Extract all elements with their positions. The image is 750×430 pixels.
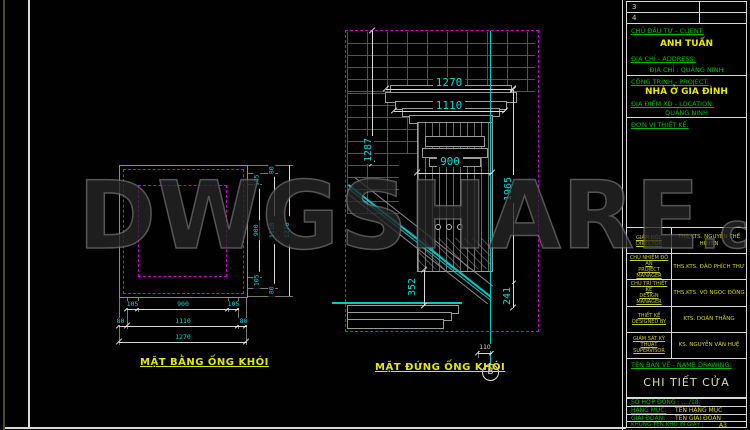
personnel-name: THS.KTS. VÕ NGỌC ĐÔNG xyxy=(672,280,746,305)
elev-dim-1287: 1287 xyxy=(364,136,374,164)
elev-dim-line-1270 xyxy=(386,89,513,90)
plan-dim-105-left: 105 xyxy=(124,301,141,308)
contract-rows: SỐ HỢP ĐỒNG : ..../18. HẠNG MỤC: TÊN HẠN… xyxy=(627,398,746,429)
personnel-row: THIẾT KẾDESIGNED BY KTS. DOÃN THẮNG xyxy=(627,307,746,333)
personnel-role-en: DIRECTOR xyxy=(636,241,662,247)
client-label: CHỦ ĐẦU TƯ - CLIENT: xyxy=(631,27,704,35)
plan-rdim-1270: 1270 xyxy=(284,216,291,244)
elev-dim-1270: 1270 xyxy=(433,77,465,88)
plan-dim-105-right: 105 xyxy=(225,301,242,308)
eave-band-3 xyxy=(347,319,444,329)
chimney-body-band-1 xyxy=(425,136,485,147)
elev-dim-900: 900 xyxy=(437,156,463,167)
category-row: HẠNG MỤC: TÊN HẠNG MỤC xyxy=(627,406,746,414)
plan-rdim-1110: 1110 xyxy=(269,216,276,244)
personnel-name: KTS. DOÃN THẮNG xyxy=(672,307,746,332)
plan-rdim-900: 900 xyxy=(253,220,260,240)
frame-left-line xyxy=(28,0,30,428)
plan-rdim-105-bot: 105 xyxy=(253,272,260,289)
chimney-vent-hole xyxy=(446,224,452,230)
stage-row: GIAI ĐOẠN: TÊN GIAI ĐOẠN xyxy=(627,414,746,422)
elev-dim-241: 241 xyxy=(503,284,513,308)
category-value: TÊN HẠNG MỤC xyxy=(675,407,722,414)
chimney-vent-hole xyxy=(435,224,441,230)
drawing-name: CHI TIẾT CỬA xyxy=(627,376,746,389)
revision-no: 4 xyxy=(632,14,636,23)
chimney-base-hatch xyxy=(418,238,490,269)
paper-label: KHUNG TÊN KHỔ IN GIẤY : xyxy=(631,422,704,429)
client-section: CHỦ ĐẦU TƯ - CLIENT: ANH TUẤN ĐỊA CHỈ - … xyxy=(627,24,746,76)
drawing-name-section: TÊN BẢN VẼ - NAME DRAWING: CHI TIẾT CỬA xyxy=(627,359,746,398)
elev-dim-line-352 xyxy=(424,270,425,306)
personnel-role-en: DESIGN MANAGER xyxy=(628,293,670,305)
site-value: QUẢNG NINH xyxy=(627,109,746,117)
elevation-view-label: MẶT ĐỨNG ỐNG KHÓI xyxy=(375,362,505,373)
plan-dashed-inner xyxy=(138,185,227,277)
address-value: ĐỊA CHỈ : QUẢNG NINH xyxy=(627,66,746,74)
plan-dim-80-left: 80 xyxy=(114,318,127,325)
revision-row: 3 xyxy=(627,2,746,13)
personnel-name: THS.KTS. ĐÀO PHÍCH THƯ xyxy=(672,254,746,279)
revision-row: 4 xyxy=(627,13,746,24)
plan-view-label: MẶT BẰNG ỐNG KHÓI xyxy=(140,357,269,368)
plan-rdim-80-top: 80 xyxy=(268,164,275,177)
plan-dim-line-2 xyxy=(119,326,247,327)
paper-row: KHUNG TÊN KHỔ IN GIẤY : A3 xyxy=(627,421,746,429)
frame-outer-left-line xyxy=(3,0,5,430)
contract-row: SỐ HỢP ĐỒNG : ..../18. xyxy=(627,398,746,406)
stage-label: GIAI ĐOẠN: xyxy=(631,415,665,422)
elev-dim-352: 352 xyxy=(408,275,418,299)
design-unit-section: ĐƠN VỊ THIẾT KẾ: xyxy=(627,118,746,228)
plan-dim-1110: 1110 xyxy=(169,318,197,325)
frame-divider-line xyxy=(622,0,623,430)
site-label: ĐỊA ĐIỂM XD - LOCATION: xyxy=(631,100,714,108)
grid-line-b xyxy=(490,31,491,364)
frame-bottom-line xyxy=(5,427,626,429)
chimney-vent-hole xyxy=(457,224,463,230)
project-label: CÔNG TRÌNH - PROJECT: xyxy=(631,78,709,86)
elev-dim-1110: 1110 xyxy=(433,100,465,111)
plan-dim-1270: 1270 xyxy=(169,334,197,341)
plan-dim-80-right: 80 xyxy=(237,318,250,325)
category-label: HẠNG MỤC: xyxy=(631,407,666,414)
personnel-role: CHỦ TRÌ THIẾT KẾ xyxy=(628,281,670,293)
personnel-role-en: SUPERVISOR xyxy=(633,348,665,354)
revision-no: 3 xyxy=(632,3,636,12)
plan-dim-line-3 xyxy=(119,342,247,343)
elev-dim-line-900 xyxy=(417,173,492,174)
design-unit-label: ĐƠN VỊ THIẾT KẾ: xyxy=(631,121,689,129)
personnel-row: GIÁM ĐỐCDIRECTOR THS.KTS. NGUYỄN THẾ HUY… xyxy=(627,228,746,254)
plan-rdim-80-bot: 80 xyxy=(268,284,275,297)
personnel-name: THS.KTS. NGUYỄN THẾ HUYỀN xyxy=(672,228,746,253)
contract-label: SỐ HỢP ĐỒNG : ..../18. xyxy=(631,399,701,406)
plan-dim-line-1 xyxy=(127,309,239,310)
client-name: ANH TUẤN xyxy=(627,39,746,49)
plan-rdim-105-top: 105 xyxy=(253,172,260,189)
personnel-name: KS. NGUYỄN VĂN HUỆ xyxy=(672,333,746,358)
address-label: ĐỊA CHỈ - ADDRESS: xyxy=(631,55,696,63)
project-section: CÔNG TRÌNH - PROJECT: NHÀ Ở GIA ĐÌNH ĐỊA… xyxy=(627,76,746,118)
elev-dim-1965: 1965 xyxy=(504,175,514,203)
title-block: 3 4 CHỦ ĐẦU TƯ - CLIENT: ANH TUẤN ĐỊA CH… xyxy=(626,1,747,428)
eave-top-line xyxy=(332,302,462,304)
plan-dim-900: 900 xyxy=(171,301,195,308)
elev-dim-110: 110 xyxy=(475,344,495,351)
personnel-role-en: PROJECT MANAGER xyxy=(628,267,670,279)
drawing-name-label: TÊN BẢN VẼ - NAME DRAWING: xyxy=(631,361,732,369)
personnel-row: CHỦ TRÌ THIẾT KẾDESIGN MANAGER THS.KTS. … xyxy=(627,280,746,306)
stage-value: TÊN GIAI ĐOẠN xyxy=(675,415,721,422)
personnel-role: GIÁM SÁT KỸ THUẬT xyxy=(628,336,670,348)
personnel-role-en: DESIGNED BY xyxy=(632,319,666,325)
personnel-role: CHỦ NHIỆM ĐỒ ÁN xyxy=(628,255,670,267)
paper-value: A3 xyxy=(719,422,727,429)
cad-viewport: DWGSHARE.com 105 900 105 80 1110 80 1270 xyxy=(0,0,750,430)
personnel-row: GIÁM SÁT KỸ THUẬTSUPERVISOR KS. NGUYỄN V… xyxy=(627,333,746,359)
personnel-row: CHỦ NHIỆM ĐỒ ÁNPROJECT MANAGER THS.KTS. … xyxy=(627,254,746,280)
personnel-table: GIÁM ĐỐCDIRECTOR THS.KTS. NGUYỄN THẾ HUY… xyxy=(627,228,746,359)
project-name: NHÀ Ở GIA ĐÌNH xyxy=(627,87,746,97)
